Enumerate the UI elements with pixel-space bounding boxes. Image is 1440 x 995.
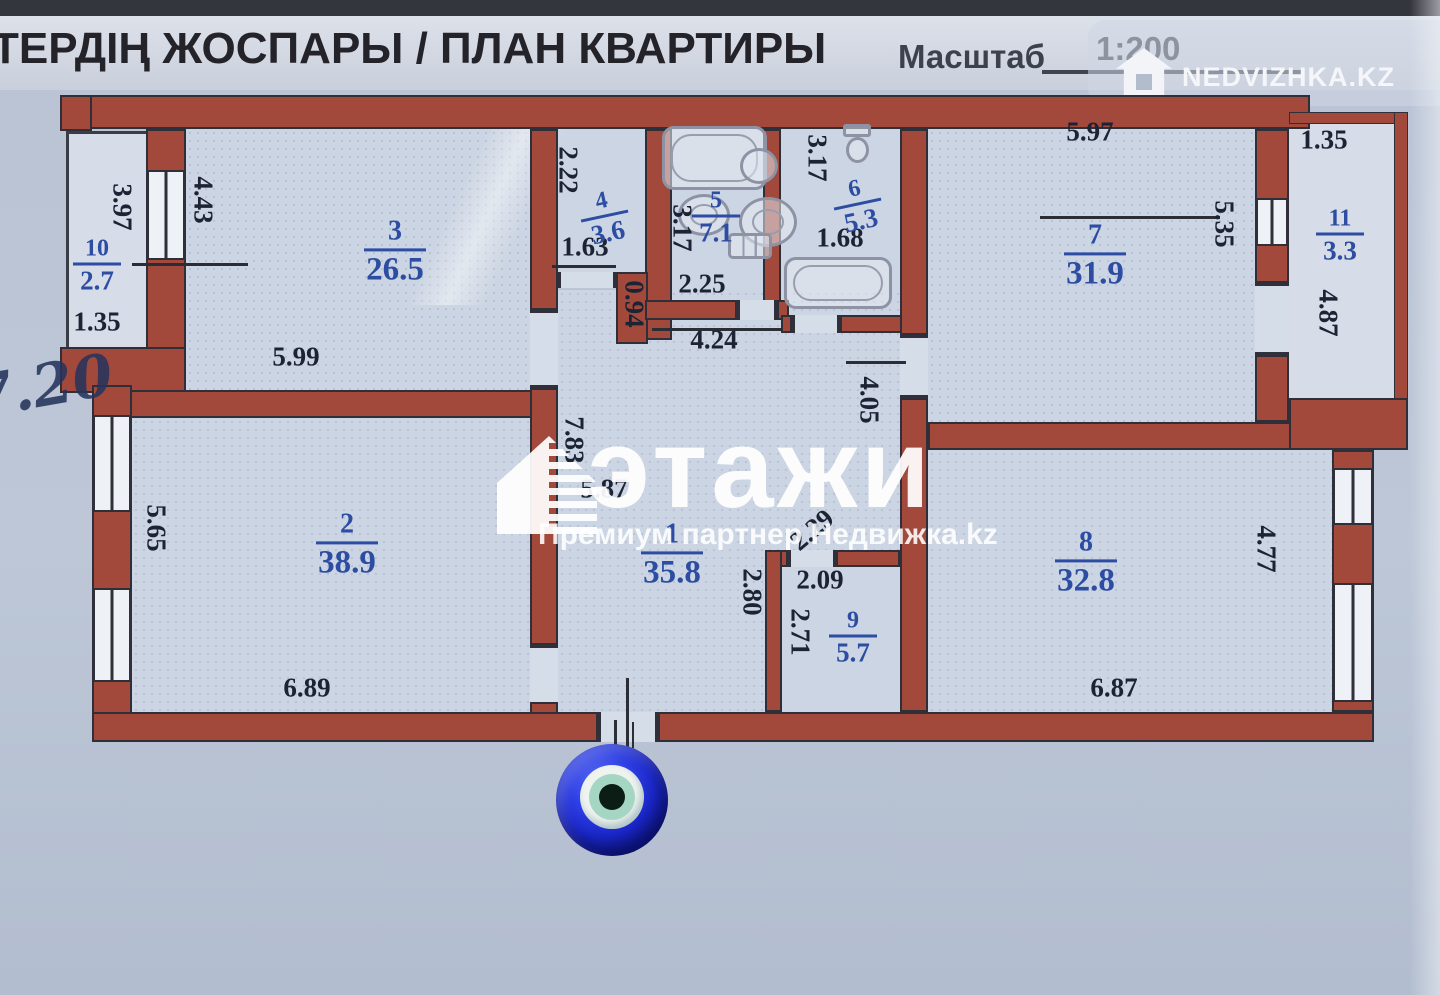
door-room6 xyxy=(792,315,840,333)
wall-loggia-right xyxy=(1394,112,1408,422)
dim-loggia-height: 4.87 xyxy=(1313,289,1344,336)
toilet-icon-room5 xyxy=(740,148,778,184)
room-label-3: 3 26.5 xyxy=(364,217,426,286)
dim-room3-side: 4.43 xyxy=(188,176,219,223)
page-title: ТЕРДІҢ ЖОСПАРЫ / ПЛАН КВАРТИРЫ xyxy=(0,24,826,74)
dim-room8-width: 6.87 xyxy=(1090,673,1137,704)
wall-room9-top-pier2 xyxy=(836,550,900,567)
room-area: 2.7 xyxy=(73,268,121,296)
room-3 xyxy=(186,129,530,390)
room-label-8: 8 32.8 xyxy=(1055,528,1117,597)
photo-right-edge xyxy=(1410,0,1440,995)
dim-loggia-width: 1.35 xyxy=(1300,125,1347,156)
scale-label: Масштаб xyxy=(898,38,1045,76)
wall-loggia-bottom-block xyxy=(1289,398,1408,450)
wall-room3-bottom xyxy=(92,390,558,418)
etazhi-watermark: этажи xyxy=(588,404,934,533)
room-label-5: 5 7.1 xyxy=(692,189,740,248)
dim-line-corridor xyxy=(846,361,906,364)
dim-room7-height: 5.35 xyxy=(1209,200,1240,247)
room-label-7: 7 31.9 xyxy=(1064,221,1126,290)
dim-room4-side: 0.94 xyxy=(619,280,650,327)
room-number: 2 xyxy=(316,510,378,539)
wall-pier-top-left xyxy=(60,95,92,131)
room-label-2: 2 38.9 xyxy=(316,510,378,579)
window-room10 xyxy=(146,172,186,258)
wall-room2-left-pier3 xyxy=(92,680,132,715)
evil-eye-bead xyxy=(556,744,668,856)
room-area: 38.9 xyxy=(316,546,378,580)
window-room8-lower xyxy=(1332,585,1374,700)
room-label-11: 11 3.3 xyxy=(1316,207,1364,266)
dim-room2-height: 5.65 xyxy=(141,504,172,551)
door-room2 xyxy=(530,645,558,706)
wall-room2-left-pier2 xyxy=(92,510,132,590)
room-number: 8 xyxy=(1055,528,1117,557)
entrance-door-mark xyxy=(626,678,629,748)
wall-room7-loggia-pier2 xyxy=(1255,244,1289,283)
dim-line-room7 xyxy=(1040,216,1220,219)
dim-line-room10 xyxy=(132,263,248,266)
floor-plan-photo: ТЕРДІҢ ЖОСПАРЫ / ПЛАН КВАРТИРЫ Масштаб 1… xyxy=(0,0,1440,995)
room-label-9: 9 5.7 xyxy=(829,609,877,668)
wall-room8-right-pier2 xyxy=(1332,523,1374,585)
bead-wire-2 xyxy=(632,722,634,748)
door-hall-corridor xyxy=(900,335,928,398)
dim-hall-width: 2.80 xyxy=(737,568,768,615)
room-area: 32.8 xyxy=(1055,564,1117,598)
wall-room7-loggia-pier3 xyxy=(1255,355,1289,422)
evil-eye-white-ring xyxy=(580,765,644,829)
wall-bottom-right xyxy=(658,712,1374,742)
door-loggia xyxy=(1255,283,1289,355)
wall-bottom-left xyxy=(92,712,598,742)
nedvizhka-logo-text: NEDVIZHKA.KZ xyxy=(1182,62,1395,93)
evil-eye-pupil xyxy=(599,784,625,810)
room-number: 10 xyxy=(73,237,121,261)
wall-room6-bottom-pier1 xyxy=(781,315,792,333)
window-room7-loggia xyxy=(1255,200,1289,244)
dim-room10-width: 1.35 xyxy=(73,307,120,338)
room-number: 5 xyxy=(692,189,740,213)
room-area: 5.7 xyxy=(829,640,877,668)
room-area: 3.3 xyxy=(1316,238,1364,266)
wall-room6-bottom-pier2 xyxy=(840,315,905,333)
evil-eye-iris xyxy=(589,774,635,820)
photo-top-dark-bar xyxy=(0,0,1440,16)
window-room2-upper xyxy=(92,417,132,510)
wall-top-exterior xyxy=(88,95,1310,129)
room-number: 9 xyxy=(829,609,877,633)
room-number: 3 xyxy=(364,217,426,246)
wall-room10-room3-lower xyxy=(146,258,186,349)
room-area: 31.9 xyxy=(1064,257,1126,291)
dim-room2-width: 6.89 xyxy=(283,673,330,704)
dim-room6-height: 3.17 xyxy=(802,134,833,181)
room-11-loggia xyxy=(1289,124,1394,422)
dim-room5-width: 2.25 xyxy=(678,269,725,300)
room-area: 26.5 xyxy=(364,253,426,287)
room-label-10: 10 2.7 xyxy=(73,237,121,296)
dim-room9-height: 2.71 xyxy=(785,608,816,655)
wall-room5-bottom xyxy=(645,300,737,320)
dim-line-room4-door xyxy=(552,265,616,268)
room-number: 11 xyxy=(1316,207,1364,231)
door-room5 xyxy=(737,300,777,320)
room-area: 7.1 xyxy=(692,220,740,248)
wall-room8-right-pier3 xyxy=(1332,700,1374,712)
wall-hall-right-upper xyxy=(900,129,928,335)
wall-room9-left xyxy=(765,550,782,712)
door-room4 xyxy=(558,272,616,288)
dim-room3-width: 5.99 xyxy=(272,342,319,373)
dim-room9-width: 2.09 xyxy=(796,565,843,596)
dim-room7-width: 5.97 xyxy=(1066,117,1113,148)
etazhi-watermark-subtitle: Премиум партнер Недвижка.kz xyxy=(538,518,998,552)
dim-room4-height: 2.22 xyxy=(553,146,584,193)
room-number: 7 xyxy=(1064,221,1126,250)
toilet-tank-icon-room6 xyxy=(843,124,871,137)
wall-room10-room3-upper xyxy=(146,129,186,172)
window-room8-upper xyxy=(1332,470,1374,523)
wall-room8-right-pier1 xyxy=(1332,450,1374,470)
dim-hall-top-width: 4.24 xyxy=(690,325,737,356)
bathtub-icon-room6 xyxy=(784,257,892,309)
door-room3 xyxy=(530,310,558,388)
toilet-bowl-icon-room6 xyxy=(846,137,869,163)
nedvizhka-house-window-icon xyxy=(1136,74,1152,90)
dim-room10-depth: 3.97 xyxy=(107,183,138,230)
window-room2-lower xyxy=(92,590,132,680)
wall-room7-loggia-pier1 xyxy=(1255,129,1289,200)
dim-room8-height: 4.77 xyxy=(1251,525,1282,572)
wall-loggia-top xyxy=(1289,112,1408,124)
room-area: 35.8 xyxy=(641,556,703,590)
